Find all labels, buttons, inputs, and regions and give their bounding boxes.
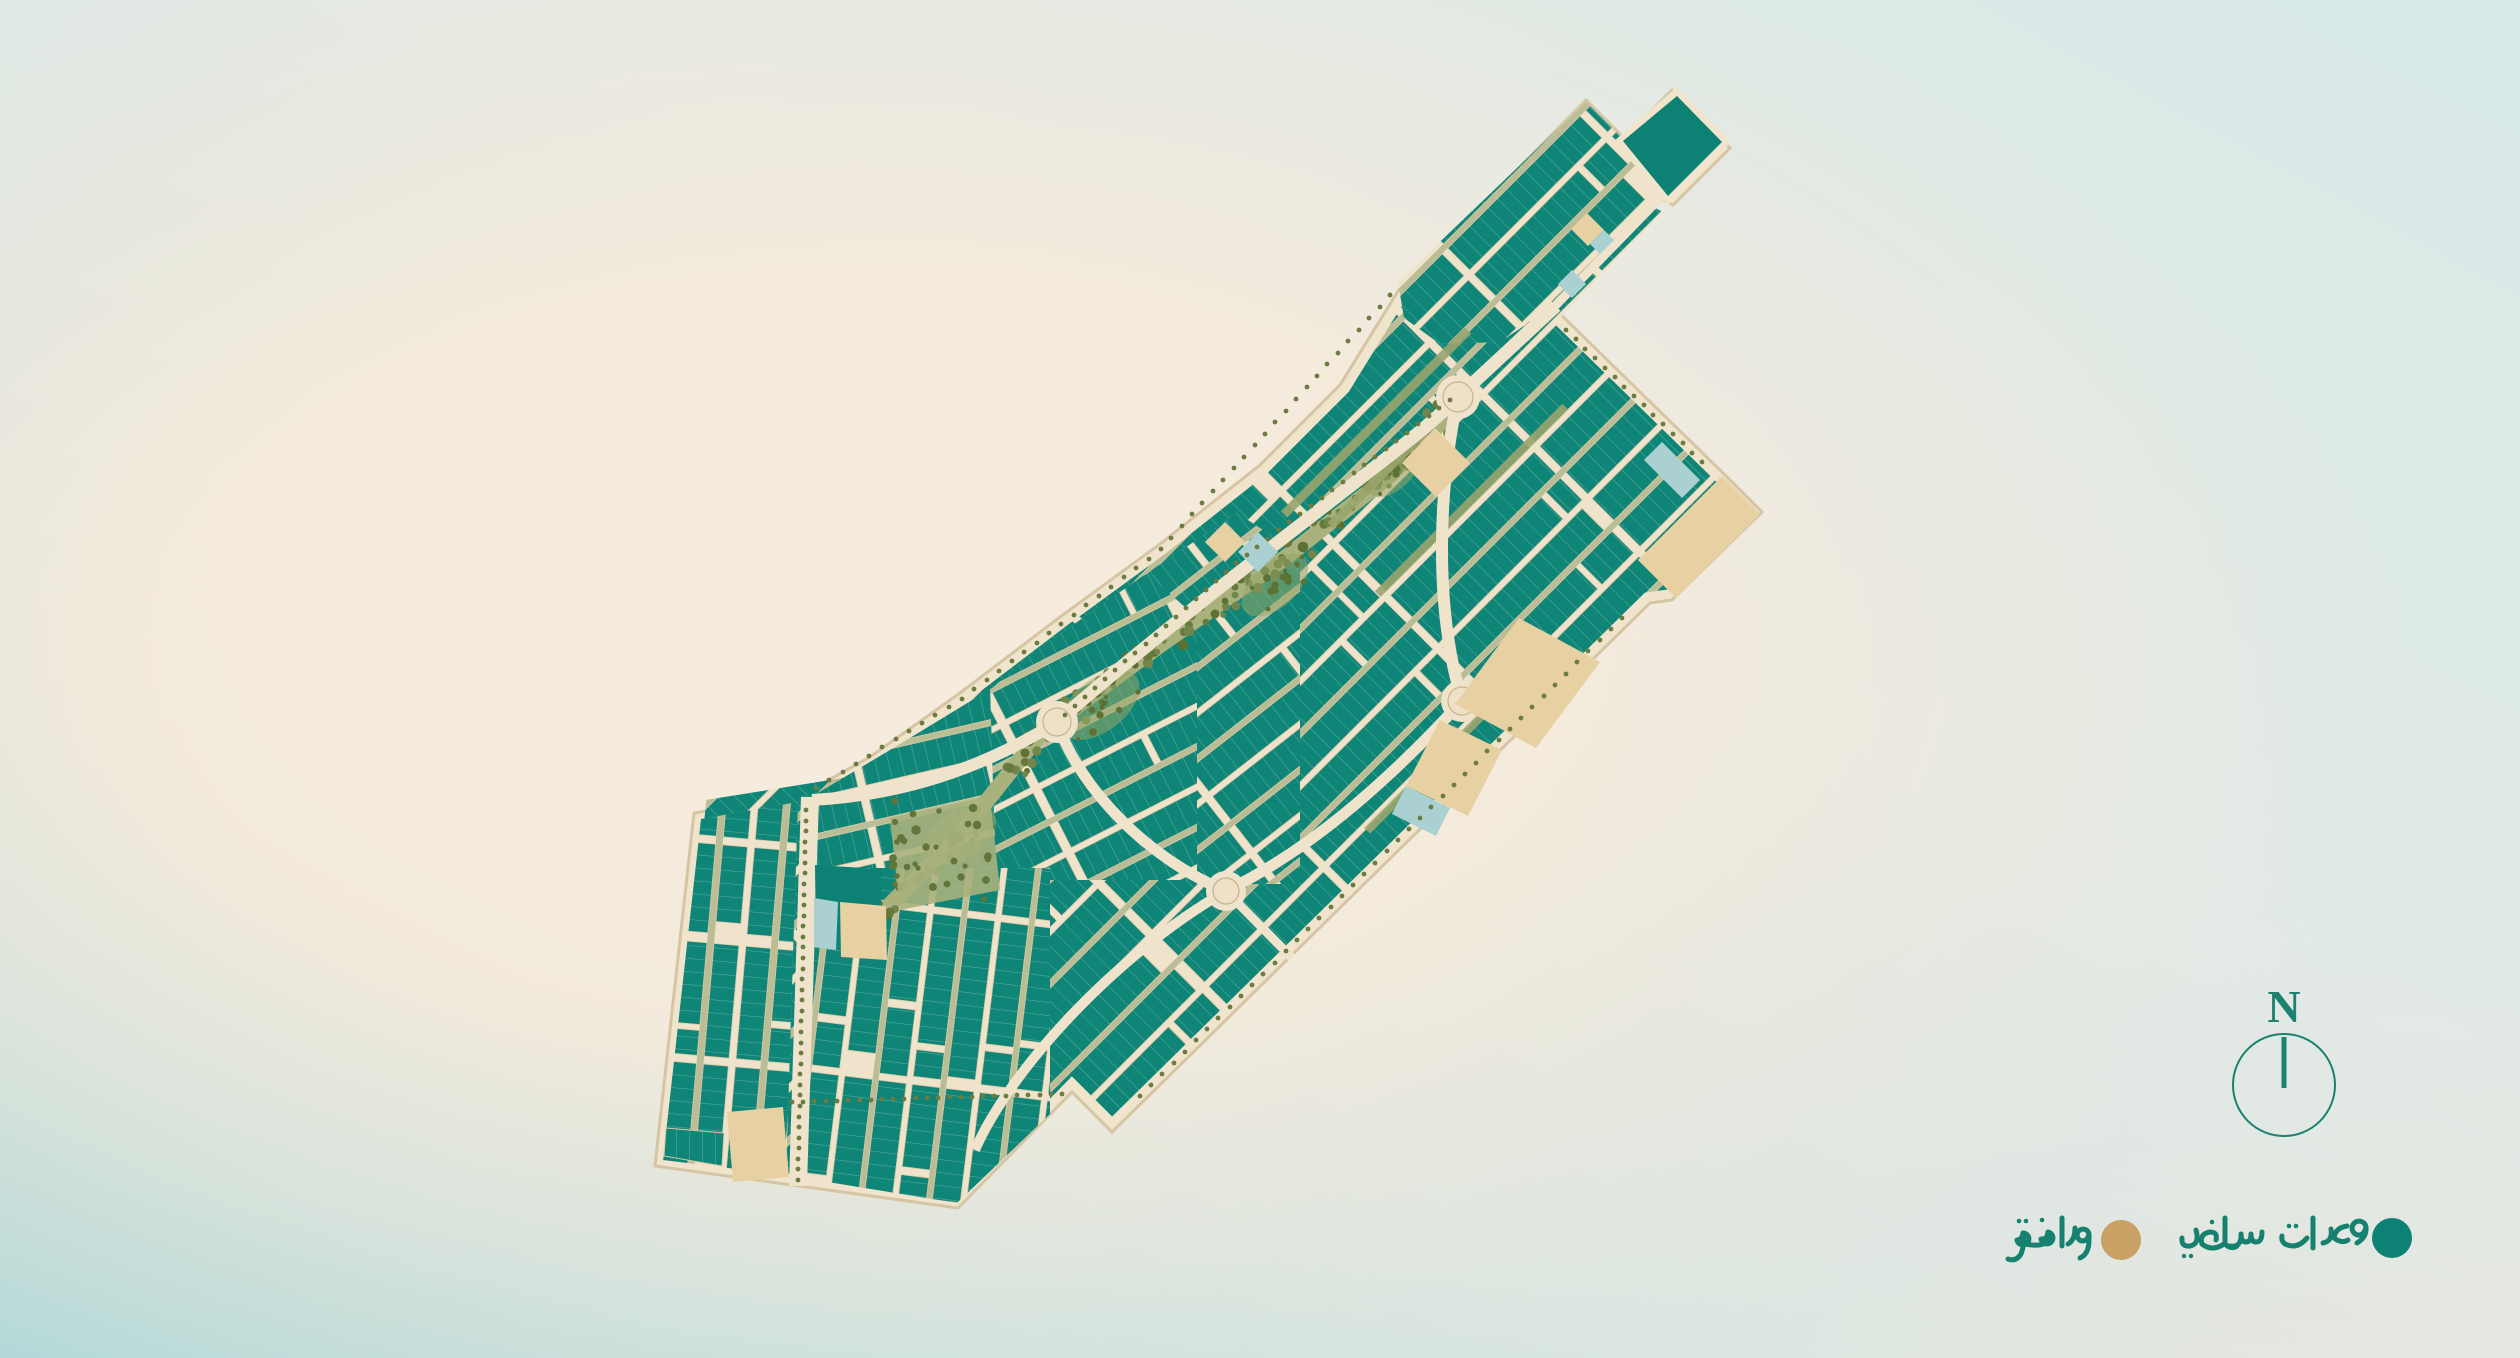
svg-text:N: N xyxy=(2267,981,2300,1032)
